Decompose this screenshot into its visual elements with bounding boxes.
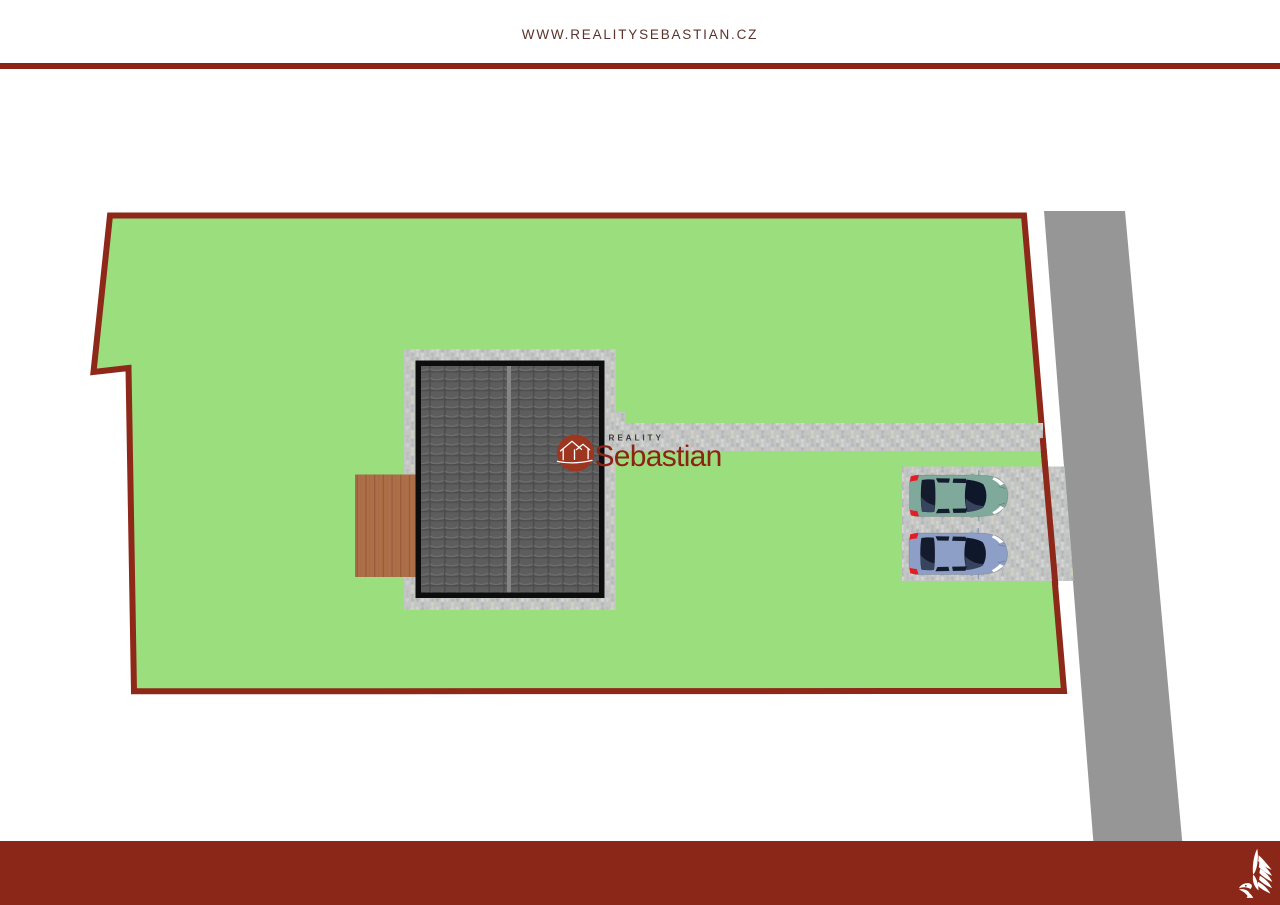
svg-text:Sebastian: Sebastian [595,440,722,473]
